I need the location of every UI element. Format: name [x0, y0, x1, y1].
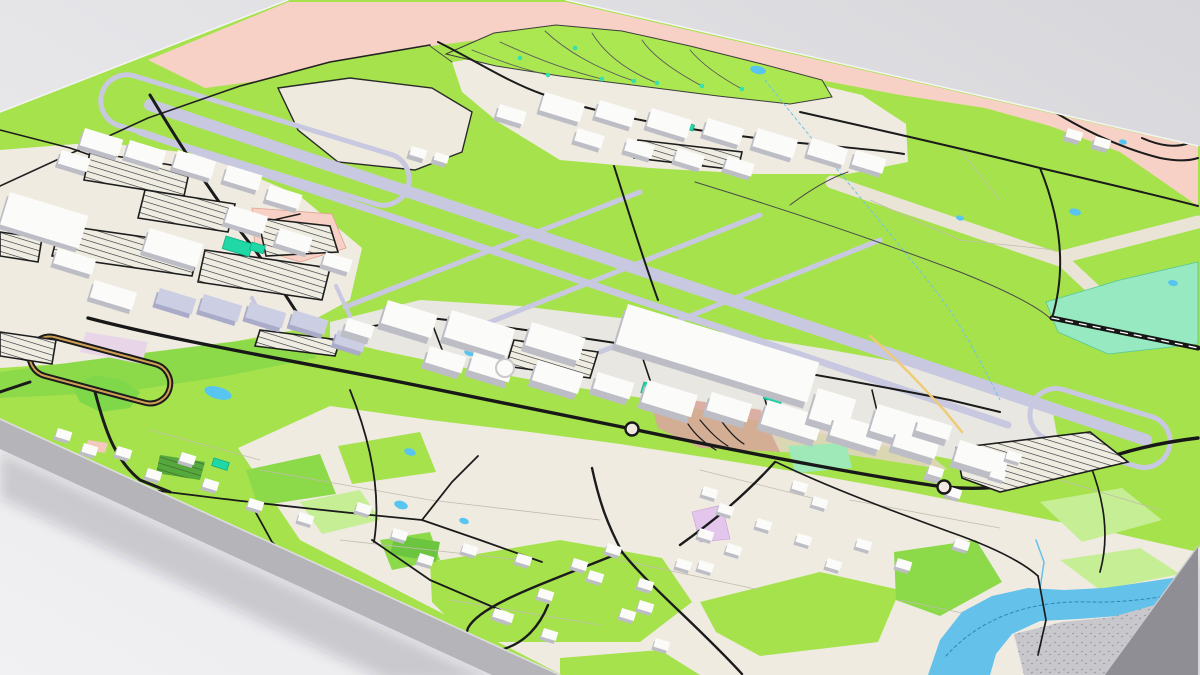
map-3d-render: [0, 0, 1200, 675]
scene-svg: [0, 0, 1200, 675]
gas-tank: [496, 359, 514, 377]
scrub-mint-patch: [788, 443, 852, 473]
